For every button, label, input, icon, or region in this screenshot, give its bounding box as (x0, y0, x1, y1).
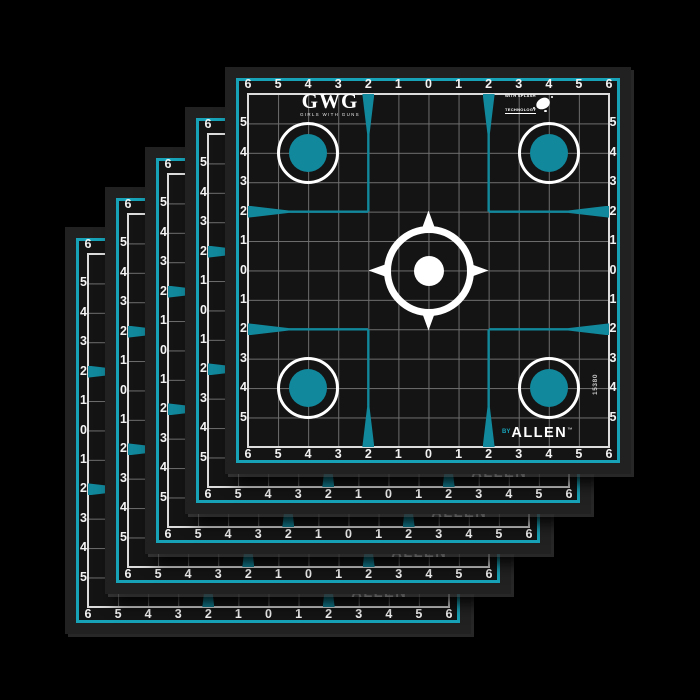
axis-number-left: 3 (114, 295, 133, 308)
axis-number-right: 5 (604, 116, 622, 129)
teal-wedge-mark-left (248, 206, 368, 218)
axis-number-bottom: 4 (179, 568, 197, 581)
axis-number-left: 1 (234, 234, 253, 247)
axis-number-bottom: 6 (560, 488, 578, 501)
axis-number-bottom: 2 (360, 568, 378, 581)
axis-number-left: 1 (194, 333, 213, 346)
axis-number-bottom: 1 (290, 608, 308, 621)
axis-number-left: 1 (114, 413, 133, 426)
axis-number-bottom: 4 (540, 448, 558, 461)
axis-number-left: 1 (114, 354, 133, 367)
axis-number-bottom: 6 (199, 488, 217, 501)
allen-trademark-symbol: ™ (567, 427, 572, 433)
axis-number-left: 2 (234, 322, 253, 335)
axis-number-bottom: 3 (510, 448, 528, 461)
axis-number-left: 5 (194, 451, 213, 464)
axis-number-bottom: 2 (480, 448, 498, 461)
bullseye-top-left (277, 122, 339, 184)
axis-number-top: 6 (159, 158, 177, 171)
gwg-logo: GWGGIRLS WITH GUNS (295, 92, 365, 117)
axis-number-bottom: 2 (279, 528, 297, 541)
axis-number-bottom: 4 (299, 448, 317, 461)
axis-number-bottom: 1 (370, 528, 388, 541)
axis-number-top: 6 (79, 238, 97, 251)
axis-number-top: 3 (510, 78, 528, 91)
axis-number-left: 2 (234, 205, 253, 218)
axis-number-bottom: 3 (430, 528, 448, 541)
axis-number-bottom: 4 (219, 528, 237, 541)
axis-number-bottom: 6 (480, 568, 498, 581)
bullseye-bottom-left (277, 357, 339, 419)
axis-number-bottom: 5 (410, 608, 428, 621)
axis-number-left: 4 (74, 541, 93, 554)
teal-wedge-mark-bottom (362, 329, 374, 447)
axis-number-bottom: 4 (420, 568, 438, 581)
axis-number-left: 2 (154, 285, 173, 298)
axis-number-left: 1 (74, 453, 93, 466)
axis-number-bottom: 5 (570, 448, 588, 461)
splash-technology-badge: WITH SPLASHTECHNOLOGY (505, 93, 553, 123)
axis-number-left: 1 (234, 293, 253, 306)
bullseye-core-top-left (289, 134, 327, 172)
axis-number-left: 4 (154, 461, 173, 474)
axis-number-bottom: 3 (329, 448, 347, 461)
axis-number-left: 5 (74, 276, 93, 289)
axis-number-bottom: 1 (309, 528, 327, 541)
axis-number-bottom: 2 (440, 488, 458, 501)
item-number: 15380 (592, 351, 599, 395)
allen-logo-by: BY (502, 429, 510, 435)
axis-number-bottom: 3 (169, 608, 187, 621)
teal-wedge-mark-bottom (483, 329, 495, 447)
axis-number-bottom: 2 (359, 448, 377, 461)
axis-number-bottom: 3 (390, 568, 408, 581)
axis-number-left: 3 (194, 392, 213, 405)
axis-number-bottom: 0 (300, 568, 318, 581)
axis-number-bottom: 5 (229, 488, 247, 501)
axis-number-left: 3 (234, 352, 253, 365)
axis-number-left: 5 (234, 411, 253, 424)
axis-number-right: 2 (604, 205, 622, 218)
axis-number-bottom: 0 (340, 528, 358, 541)
axis-number-bottom: 2 (320, 608, 338, 621)
axis-number-left: 3 (74, 512, 93, 525)
axis-number-bottom: 5 (530, 488, 548, 501)
axis-number-left: 0 (194, 304, 213, 317)
axis-number-bottom: 1 (349, 488, 367, 501)
target-sheet: 6543210123456654321012345654321012345543… (225, 67, 631, 474)
crosshair-center-dot (414, 256, 444, 286)
axis-number-left: 2 (74, 482, 93, 495)
axis-number-left: 2 (114, 442, 133, 455)
axis-number-left: 4 (234, 146, 253, 159)
axis-number-right: 1 (604, 293, 622, 306)
axis-number-bottom: 2 (239, 568, 257, 581)
axis-number-bottom: 1 (330, 568, 348, 581)
axis-number-bottom: 1 (389, 448, 407, 461)
teal-wedge-mark-right (489, 323, 609, 335)
axis-number-left: 1 (154, 314, 173, 327)
axis-number-left: 4 (114, 266, 133, 279)
teal-wedge-mark-left (248, 323, 368, 335)
axis-number-bottom: 3 (470, 488, 488, 501)
axis-number-left: 5 (234, 116, 253, 129)
axis-number-bottom: 4 (139, 608, 157, 621)
bullseye-core-bottom-right (530, 369, 568, 407)
axis-number-bottom: 6 (119, 568, 137, 581)
axis-number-bottom: 6 (440, 608, 458, 621)
axis-number-top: 4 (540, 78, 558, 91)
axis-number-left: 3 (154, 432, 173, 445)
gwg-logo-subtitle: GIRLS WITH GUNS (295, 112, 365, 117)
axis-number-bottom: 5 (490, 528, 508, 541)
axis-number-top: 6 (119, 198, 137, 211)
axis-number-right: 2 (604, 322, 622, 335)
axis-number-left: 5 (74, 571, 93, 584)
axis-number-bottom: 5 (189, 528, 207, 541)
crosshair-spike-top (421, 211, 437, 233)
axis-number-left: 3 (234, 175, 253, 188)
crosshair-spike-bottom (421, 309, 437, 331)
axis-number-top: 5 (269, 78, 287, 91)
bullseye-core-top-right (530, 134, 568, 172)
axis-number-left: 0 (74, 424, 93, 437)
axis-number-left: 3 (74, 335, 93, 348)
axis-number-left: 3 (114, 472, 133, 485)
teal-wedge-mark-top (483, 94, 495, 212)
axis-number-bottom: 4 (460, 528, 478, 541)
axis-number-bottom: 6 (159, 528, 177, 541)
axis-number-bottom: 1 (269, 568, 287, 581)
bullseye-top-right (518, 122, 580, 184)
axis-number-top: 5 (570, 78, 588, 91)
gwg-logo-text: GWG (295, 92, 365, 111)
axis-number-bottom: 0 (260, 608, 278, 621)
axis-number-left: 4 (74, 306, 93, 319)
axis-number-right: 3 (604, 175, 622, 188)
axis-number-bottom: 5 (450, 568, 468, 581)
crosshair-spike-right (467, 263, 489, 279)
axis-number-left: 1 (74, 394, 93, 407)
axis-number-top: 1 (450, 78, 468, 91)
axis-number-bottom: 6 (600, 448, 618, 461)
axis-number-left: 4 (194, 186, 213, 199)
axis-number-top: 2 (359, 78, 377, 91)
teal-wedge-mark-right (489, 206, 609, 218)
crosshair-spike-left (369, 263, 391, 279)
paint-splatter-dot (533, 107, 535, 109)
axis-number-bottom: 4 (500, 488, 518, 501)
axis-number-left: 2 (74, 365, 93, 378)
axis-number-bottom: 6 (520, 528, 538, 541)
axis-number-right: 0 (604, 264, 622, 277)
allen-logo-name: ALLEN (511, 426, 567, 441)
allen-logo: BYALLEN™ (502, 426, 572, 441)
axis-number-top: 1 (389, 78, 407, 91)
axis-number-left: 4 (154, 226, 173, 239)
axis-number-left: 4 (234, 381, 253, 394)
axis-number-bottom: 0 (420, 448, 438, 461)
paint-splatter-icon (535, 96, 551, 110)
axis-number-bottom: 2 (199, 608, 217, 621)
axis-number-right: 4 (604, 146, 622, 159)
axis-number-bottom: 5 (149, 568, 167, 581)
sight-grid (248, 94, 609, 447)
axis-number-bottom: 5 (109, 608, 127, 621)
axis-number-bottom: 2 (319, 488, 337, 501)
axis-number-top: 2 (480, 78, 498, 91)
axis-number-left: 5 (194, 156, 213, 169)
axis-number-right: 3 (604, 352, 622, 365)
axis-number-left: 3 (154, 255, 173, 268)
paint-splatter-dot (544, 110, 547, 112)
axis-number-left: 3 (194, 215, 213, 228)
product-image-sight-in-target-stack: 6543210123456654321012345654321012345543… (0, 0, 700, 700)
axis-number-top: 0 (420, 78, 438, 91)
axis-number-bottom: 0 (380, 488, 398, 501)
axis-number-right: 1 (604, 234, 622, 247)
axis-number-left: 5 (154, 491, 173, 504)
axis-number-left: 2 (154, 402, 173, 415)
axis-number-top: 6 (239, 78, 257, 91)
axis-number-top: 6 (600, 78, 618, 91)
axis-number-left: 0 (114, 384, 133, 397)
bullseye-bottom-right (518, 357, 580, 419)
axis-number-bottom: 6 (79, 608, 97, 621)
axis-number-bottom: 3 (249, 528, 267, 541)
splash-badge-line2: TECHNOLOGY (505, 107, 536, 114)
axis-number-bottom: 1 (229, 608, 247, 621)
axis-number-bottom: 6 (239, 448, 257, 461)
axis-number-bottom: 4 (380, 608, 398, 621)
axis-number-left: 5 (154, 196, 173, 209)
axis-number-left: 1 (154, 373, 173, 386)
axis-number-left: 2 (194, 245, 213, 258)
axis-number-bottom: 3 (350, 608, 368, 621)
axis-number-left: 0 (154, 344, 173, 357)
axis-number-left: 2 (194, 362, 213, 375)
axis-number-left: 5 (114, 236, 133, 249)
bullseye-core-bottom-left (289, 369, 327, 407)
paint-splatter-dot (551, 96, 553, 98)
axis-number-left: 0 (234, 264, 253, 277)
axis-number-left: 4 (194, 421, 213, 434)
axis-number-bottom: 1 (450, 448, 468, 461)
axis-number-bottom: 2 (400, 528, 418, 541)
axis-number-right: 4 (604, 381, 622, 394)
axis-number-bottom: 5 (269, 448, 287, 461)
axis-number-left: 1 (194, 274, 213, 287)
axis-number-bottom: 4 (259, 488, 277, 501)
axis-number-bottom: 3 (289, 488, 307, 501)
axis-number-bottom: 3 (209, 568, 227, 581)
axis-number-top: 6 (199, 118, 217, 131)
axis-number-bottom: 1 (410, 488, 428, 501)
axis-number-left: 2 (114, 325, 133, 338)
axis-number-left: 5 (114, 531, 133, 544)
axis-number-left: 4 (114, 501, 133, 514)
axis-number-right: 5 (604, 411, 622, 424)
